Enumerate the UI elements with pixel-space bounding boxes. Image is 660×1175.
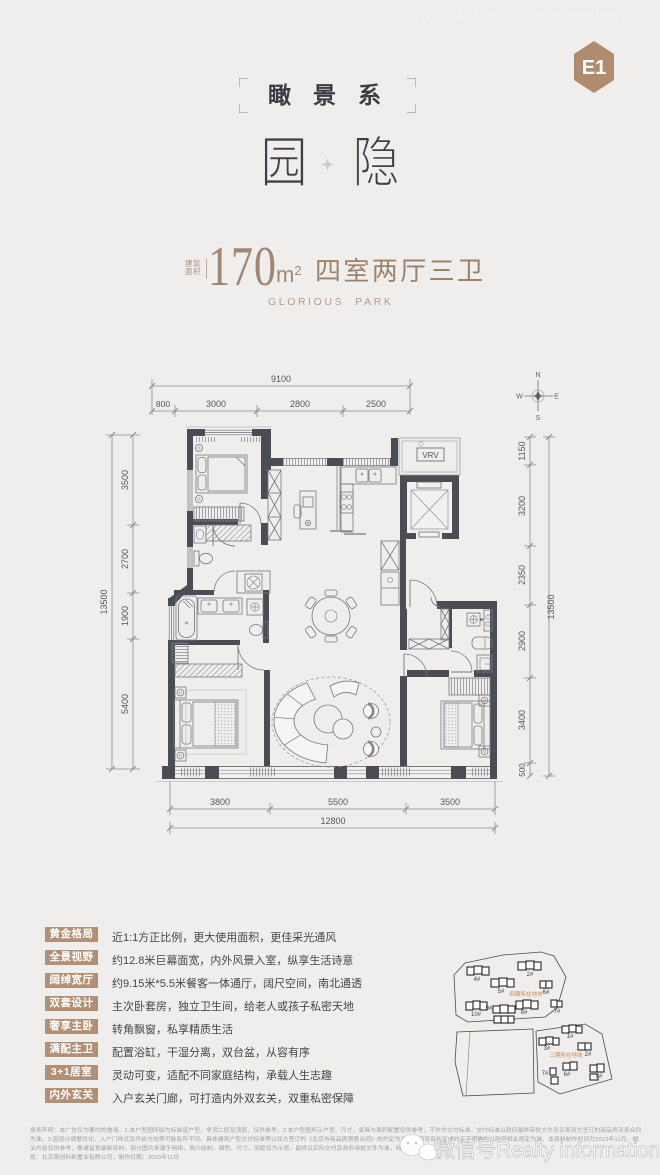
svg-text:S: S — [536, 415, 541, 422]
svg-text:6#: 6# — [543, 990, 550, 996]
svg-text:E: E — [554, 394, 559, 401]
svg-text:VRV: VRV — [422, 451, 439, 460]
svg-text:1#: 1# — [567, 1034, 574, 1040]
svg-text:3500: 3500 — [440, 797, 460, 807]
svg-text:3400: 3400 — [517, 710, 527, 730]
svg-text:5#: 5# — [498, 989, 505, 995]
svg-text:7#: 7# — [542, 1071, 549, 1077]
svg-text:12800: 12800 — [320, 816, 345, 826]
svg-text:1150: 1150 — [517, 441, 527, 460]
svg-text:13500: 13500 — [546, 594, 556, 619]
svg-text:2#: 2# — [585, 1052, 592, 1058]
svg-text:6#: 6# — [564, 1072, 571, 1078]
svg-text:3500: 3500 — [120, 470, 130, 490]
svg-text:W: W — [516, 394, 523, 401]
svg-text:N: N — [535, 372, 540, 379]
svg-text:2#: 2# — [527, 972, 534, 978]
svg-text:2800: 2800 — [290, 399, 310, 409]
svg-text:5400: 5400 — [120, 694, 130, 714]
svg-text:3#: 3# — [544, 1046, 551, 1052]
svg-text:E1: E1 — [582, 57, 606, 79]
svg-text:5500: 5500 — [328, 797, 348, 807]
svg-text:3800: 3800 — [210, 797, 230, 807]
svg-text:2350: 2350 — [517, 565, 527, 585]
svg-text:四期所在地块: 四期所在地块 — [509, 990, 543, 998]
svg-text:9100: 9100 — [271, 374, 291, 384]
svg-text:2700: 2700 — [120, 549, 130, 569]
svg-text:3200: 3200 — [517, 496, 527, 516]
svg-text:2500: 2500 — [366, 399, 386, 409]
svg-text:微信号Realty information: 微信号Realty information — [434, 1139, 660, 1162]
svg-text:9#: 9# — [486, 1006, 493, 1012]
svg-text:2900: 2900 — [517, 631, 527, 651]
svg-text:7#: 7# — [554, 1009, 561, 1015]
svg-text:1900: 1900 — [120, 606, 130, 626]
svg-text:三期所在地块: 三期所在地块 — [549, 1051, 583, 1059]
svg-text:10#: 10# — [471, 1012, 482, 1018]
svg-text:8#: 8# — [521, 1010, 528, 1016]
svg-text:8#: 8# — [596, 1074, 603, 1080]
svg-text:3000: 3000 — [206, 399, 226, 409]
svg-text:4#: 4# — [474, 977, 481, 983]
svg-text:500: 500 — [518, 763, 527, 777]
svg-text:800: 800 — [156, 399, 170, 409]
svg-text:13500: 13500 — [99, 589, 109, 614]
